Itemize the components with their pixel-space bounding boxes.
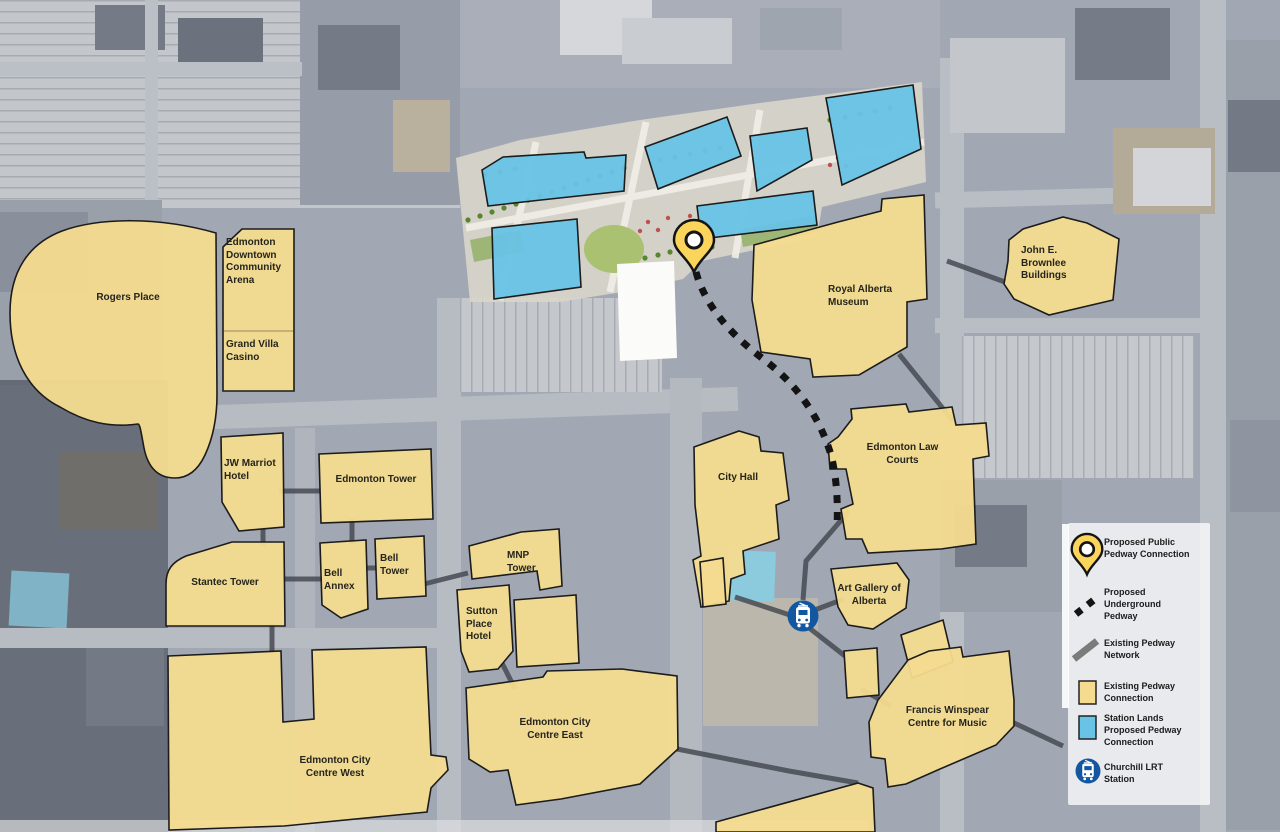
plaza-furniture-dot — [828, 163, 832, 167]
legend-station-lands-swatch — [1079, 716, 1096, 739]
legend-label-pin: Proposed Public Pedway Connection — [1104, 536, 1204, 560]
building-label-ecc-west: Edmonton City Centre West — [285, 755, 385, 780]
building-label-law-courts: Edmonton Law Courts — [860, 442, 945, 467]
tree-dot — [642, 255, 647, 260]
tree-dot — [465, 217, 470, 222]
tree-dot — [667, 249, 672, 254]
building-label-winspear: Francis Winspear Centre for Music — [890, 705, 1005, 730]
building-label-city-hall: City Hall — [698, 472, 778, 485]
building-label-grand-villa-casino: Grand Villa Casino — [226, 339, 290, 364]
building-shape-ecc-west — [168, 647, 448, 830]
legend-existing-connection-swatch — [1079, 681, 1096, 704]
legend-label-network: Existing Pedway Network — [1104, 637, 1186, 661]
plaza-furniture-dot — [666, 216, 670, 220]
building-label-bell-annex: Bell Annex — [324, 568, 364, 593]
plaza-furniture-dot — [646, 220, 650, 224]
legend-pedway-network-icon — [1074, 641, 1097, 659]
building-shape-unlabeled — [514, 595, 579, 667]
building-label-bell-tower: Bell Tower — [380, 553, 420, 578]
white-building — [617, 261, 677, 361]
building-shape-rogers-place — [10, 221, 217, 478]
station-lands-building-shape — [492, 219, 581, 299]
building-label-art-gallery: Art Gallery of Alberta — [832, 583, 906, 608]
building-label-stantec-tower: Stantec Tower — [165, 577, 285, 590]
legend-label-underground: Proposed Underground Pedway — [1104, 586, 1168, 622]
building-label-community-arena: Edmonton Downtown Community Arena — [226, 237, 288, 287]
plaza-furniture-dot — [638, 229, 642, 233]
building-label-edmonton-tower: Edmonton Tower — [320, 474, 432, 487]
tree-dot — [489, 209, 494, 214]
pedway-map: Rogers Place Edmonton Downtown Community… — [0, 0, 1280, 832]
tree-dot — [655, 252, 660, 257]
legend-pin-icon — [1072, 534, 1103, 575]
building-shape-unlabeled — [716, 783, 875, 832]
tree-dot — [477, 213, 482, 218]
building-label-ecc-east: Edmonton City Centre East — [505, 717, 605, 742]
building-label-mnp-tower: MNP Tower — [507, 550, 551, 575]
building-label-museum: Royal Alberta Museum — [828, 284, 923, 309]
building-shape-law-courts — [828, 404, 989, 553]
plaza-furniture-dot — [656, 228, 660, 232]
building-label-brownlee: John E. Brownlee Buildings — [1021, 245, 1091, 283]
churchill-lrt-station-icon — [788, 601, 819, 632]
building-label-rogers-place: Rogers Place — [78, 292, 178, 305]
legend-underground-pedway-icon — [1076, 596, 1099, 614]
building-label-sutton-place: Sutton Place Hotel — [466, 606, 514, 644]
legend-label-existing-connection: Existing Pedway Connection — [1104, 680, 1188, 704]
legend-lrt-icon — [1076, 759, 1101, 784]
legend-label-lrt: Churchill LRT Station — [1104, 761, 1184, 785]
legend-label-station-lands: Station Lands Proposed Pedway Connection — [1104, 712, 1194, 748]
plaza-furniture-dot — [688, 214, 692, 218]
building-shape-unlabeled — [700, 558, 726, 607]
building-label-jw-marriot: JW Marriot Hotel — [224, 458, 288, 483]
legend: Proposed Public Pedway Connection Propos… — [1068, 523, 1210, 805]
building-shape-unlabeled — [844, 648, 879, 698]
tree-dot — [501, 205, 506, 210]
